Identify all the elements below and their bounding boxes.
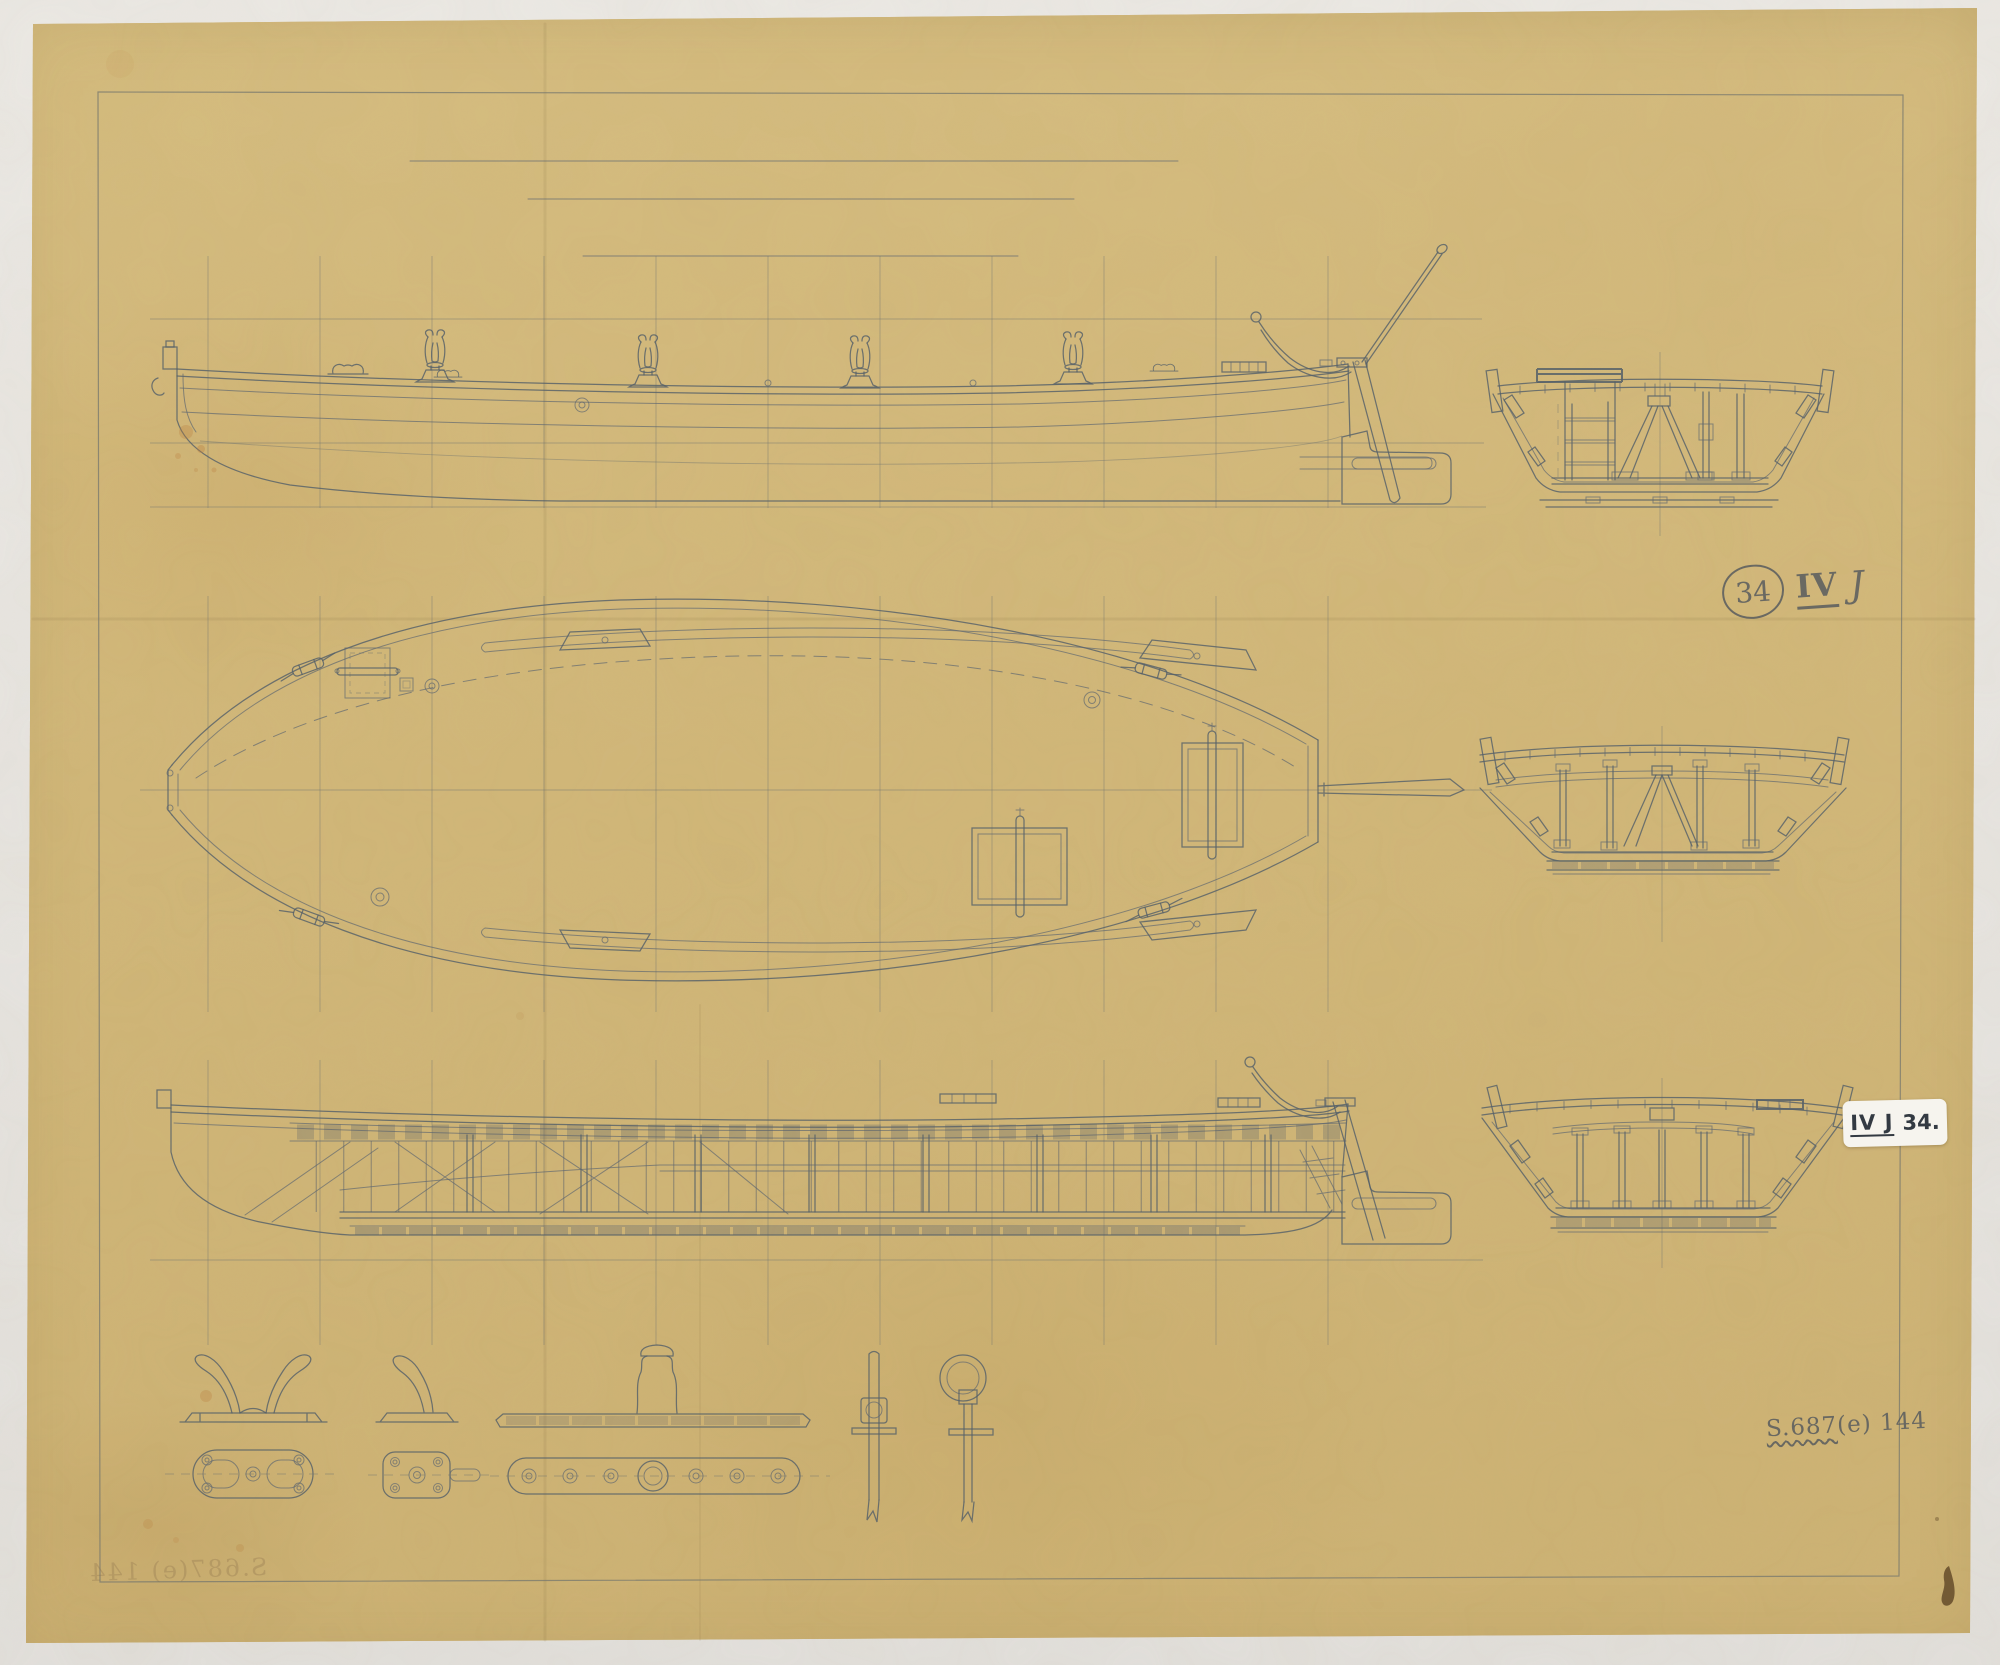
label-number: 34. [1902,1110,1940,1135]
paper-grain-texture [33,8,1977,1643]
boat-blueprint-drawing [0,0,2000,1665]
circled-number: 34 [1720,563,1786,621]
series-roman-numeral: IV [1795,565,1840,610]
label-code: IV J [1850,1110,1894,1137]
series-letter: J [1848,564,1865,606]
photo-background: 34 IV J IV J 34. S.687(e) 144 S.687(e) 1… [0,0,2000,1665]
catalog-label-sticker: IV J 34. [1842,1099,1947,1148]
catalog-annotation: 34 IV J [1720,557,1866,621]
